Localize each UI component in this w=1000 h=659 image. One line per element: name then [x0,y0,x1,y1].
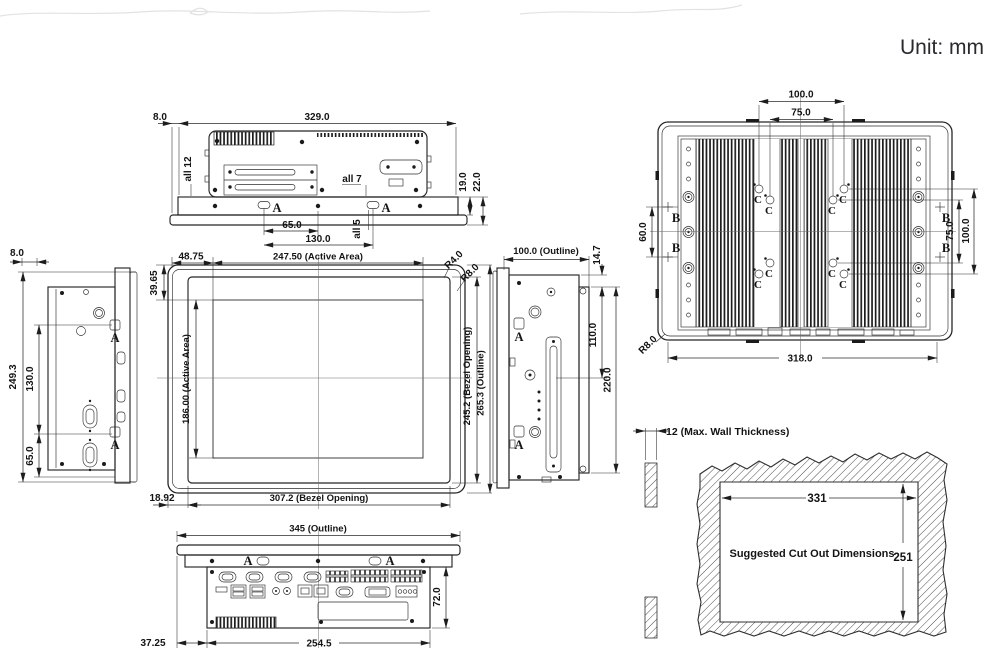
unit-note: Unit: mm [900,36,984,59]
dim-right-outline-depth: 100.0 (Outline) [513,246,578,257]
section-label: C [765,268,773,280]
right-bezel [497,268,509,488]
dim-right-top-offset: 14.7 [592,245,603,265]
cutout-diagram: 12 (Max. Wall Thickness) 331 251 Suggest… [633,426,947,638]
dim-cutout-height: 251 [893,552,913,564]
dim-left-overhang: 8.0 [10,248,24,259]
section-label: A [514,438,523,452]
top-heatsink-comb [214,132,274,145]
section-label: C [754,194,762,206]
note-screws-top: all 7 [342,174,362,185]
dim-front-active-offset-x: 48.75 [178,252,203,263]
dim-rear-vesa-width-75: 75.0 [791,108,811,119]
dim-left-port-offset: 65.0 [25,446,36,466]
dim-left-outline-height: 249.3 [8,364,19,389]
right-side-view: A A 100.0 (Outline) 14.7 110.0 220.0 [493,245,620,488]
scan-artifact [0,5,742,16]
dim-bottom-io-span: 254.5 [306,639,331,650]
terminal-block [351,570,388,582]
top-bezel-edge [170,215,467,225]
right-mount-bracket [579,287,589,473]
bottom-view: 345 (Outline) A A [140,524,460,650]
dim-rear-corner-radius: R8.0 [637,334,660,357]
bottom-vent-comb [216,617,276,628]
section-label: C [765,205,773,217]
dim-right-mount-span: 110.0 [588,322,599,347]
dim-bottom-side-offset: 37.25 [140,638,165,649]
dim-front-bezel-opening-width: 307.2 (Bezel Opening) [270,493,369,504]
section-label: B [672,211,680,225]
section-label: A [385,554,394,568]
top-view: A A 8.0 329.0 all 12 all 7 19.0 22.0 65.… [153,112,488,249]
left-db9-port [83,443,97,467]
section-label: A [514,330,523,344]
front-view: 48.75 247.50 (Active Area) R4.0 R8.0 39.… [149,249,492,509]
section-label: C [828,268,836,280]
section-label: B [672,241,680,255]
rear-view: C C C C C C C C B B B B [637,90,978,365]
expansion-slot [318,602,408,620]
section-label: A [381,201,390,215]
dim-front-active-height: 186.00 (Active Area) [181,334,192,424]
io-usb-lan-ports [216,585,417,598]
technical-drawing: Unit: mm A A 8.0 329.0 all 12 [0,0,1000,659]
section-label: C [839,279,847,291]
dim-rear-vesa-height-100: 100.0 [961,218,972,243]
dim-cutout-width: 331 [807,493,827,505]
dim-front-bezel-offset: 18.92 [149,493,174,504]
dim-top-chassis-width: 329.0 [304,112,329,123]
io-serial-ports [219,570,422,582]
drawing-page: Unit: mm A A 8.0 329.0 all 12 [0,0,1000,659]
top-small-plate [380,160,422,174]
wall-section-lower [645,597,657,638]
rear-bottom-connectors [708,328,914,335]
top-slot-a1 [258,202,270,209]
dim-top-flange-height: 19.0 [458,172,469,192]
section-label: C [828,205,836,217]
rear-vesa-channel [828,139,852,327]
dim-bottom-outline-width: 345 (Outline) [289,524,347,535]
dim-top-slot-span: 130.0 [305,234,330,245]
wall-thickness-note: 12 (Max. Wall Thickness) [666,426,789,438]
bottom-slot-a2 [369,557,381,565]
left-glass-edge [130,272,137,482]
section-label: A [243,554,252,568]
dim-top-overhang: 8.0 [153,112,167,123]
dim-front-bezel-opening-height: 245.2 (Bezel Opening) [462,327,473,426]
top-slot-a2 [367,202,379,209]
section-label: A [110,438,119,452]
terminal-block [391,570,422,582]
section-label: C [754,279,762,291]
note-screws-side: all 12 [183,156,194,181]
cutout-caption: Suggested Cut Out Dimensions [729,548,894,560]
section-label: A [272,201,281,215]
note-screws-bottom: all 5 [352,219,363,239]
bottom-slot-a1 [257,557,269,565]
dim-rear-bracket-pitch: 60.0 [638,222,649,242]
right-slot-plate [546,337,561,472]
right-glass-edge [493,271,497,483]
wall-section-upper [645,463,657,507]
dim-front-active-width: 247.50 (Active Area) [273,252,363,263]
left-db9-port [83,405,97,428]
dim-rear-vesa-width-100: 100.0 [788,90,813,101]
front-active-area [213,300,423,458]
front-bezel-opening [188,277,450,483]
dim-rear-body-width: 318.0 [787,354,812,365]
dim-bottom-io-depth: 72.0 [432,587,443,607]
dim-front-active-offset-y: 39.65 [149,270,160,295]
left-side-view: A A 8.0 249.3 130.0 65.0 [8,248,137,483]
section-label: B [942,241,950,255]
dim-right-bracket-span: 220.0 [603,367,614,392]
top-vent-strip [317,133,423,137]
wall-with-cutout [697,452,947,636]
rear-vesa-channel [754,139,780,327]
terminal-block [326,571,348,582]
dim-top-total-height: 22.0 [472,172,483,192]
dim-top-slot-offset: 65.0 [282,220,302,231]
section-label: A [110,331,119,345]
left-chassis [48,287,115,470]
dim-rear-vesa-height-75: 75.0 [945,221,956,241]
dim-left-port-span: 130.0 [25,366,36,391]
dim-front-outline-height: 265.3 (Outline) [476,350,487,415]
